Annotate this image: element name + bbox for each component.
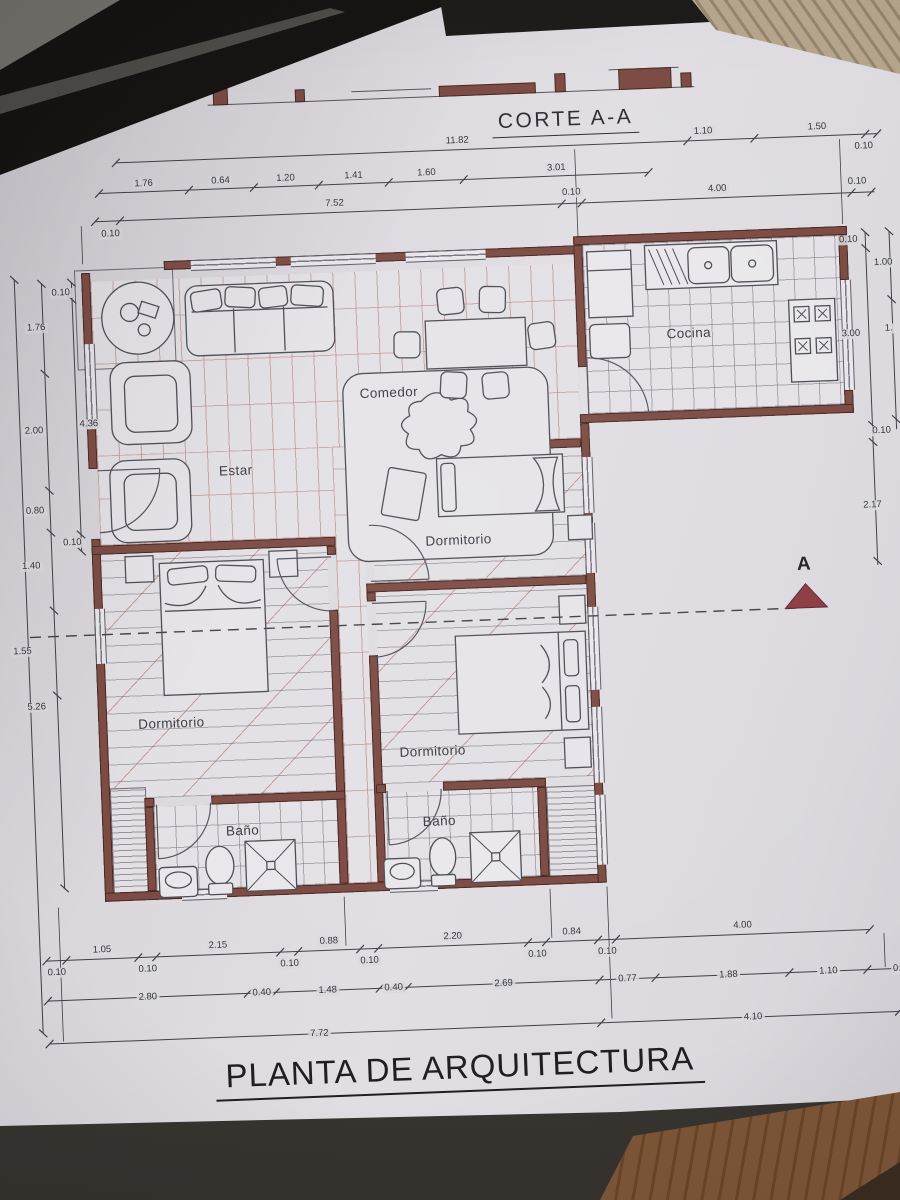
room-label-dormitorio2: Dormitorio (138, 714, 205, 732)
dim-label: 1.41 (342, 171, 365, 181)
dim-label: 2.69 (492, 978, 515, 988)
dim-label: 0.88 (317, 936, 340, 946)
dim-label: 3.00 (839, 329, 862, 339)
bedroom2-furniture (125, 550, 302, 696)
dim-label: 0.10 (891, 963, 900, 973)
dim-label: 4.00 (731, 920, 754, 930)
dim-label: 1.88 (717, 970, 740, 980)
room-label-estar: Estar (219, 462, 253, 478)
dim-label: 0.40 (382, 983, 405, 993)
dim-label: 0.10 (99, 229, 122, 239)
bedroom3-furniture (454, 595, 592, 772)
kitchen-fixtures (586, 238, 837, 389)
photo-of-floor-plan: CORTE A-A (0, 0, 900, 1200)
room-label-bano2: Baño (422, 813, 456, 829)
dim-label: 7.52 (323, 198, 346, 208)
dim-label: 0.10 (870, 425, 893, 435)
dim-label: 0.84 (560, 927, 583, 937)
room-label-dormitorio1: Dormitorio (425, 531, 492, 549)
dim-label: 1.48 (316, 985, 339, 995)
dim-label: 0.10 (49, 288, 72, 298)
dim-label: 1. (883, 323, 895, 333)
room-label-dormitorio3: Dormitorio (399, 742, 466, 760)
dim-label: 0.10 (596, 946, 619, 956)
dim-label: 2.20 (441, 931, 464, 941)
dim-label: 0.80 (24, 506, 47, 516)
dim-label: 0.10 (278, 959, 301, 969)
dim-label: 11.82 (444, 135, 471, 146)
dim-label: 1.10 (817, 966, 840, 976)
dim-label: 2.80 (136, 992, 159, 1002)
dim-label: 4.00 (706, 184, 729, 194)
dim-label: 0.10 (136, 964, 159, 974)
dim-label: 7.72 (308, 1029, 331, 1039)
dim-label: 0.10 (358, 956, 381, 966)
dim-label: 5.26 (25, 702, 48, 712)
dim-label: 0.10 (852, 141, 875, 151)
dim-label: 1.40 (20, 561, 43, 571)
dim-label: 0.10 (560, 187, 583, 197)
sheet-content: CORTE A-A (0, 0, 900, 1200)
section-marker-triangle (784, 583, 827, 609)
dim-label: 4.36 (77, 419, 100, 429)
dim-label: 0.77 (616, 974, 639, 984)
dim-label: 0.10 (846, 176, 869, 186)
bathroom2-fixtures (383, 831, 522, 889)
dim-label: 1.50 (806, 122, 829, 132)
dim-label: 0.10 (837, 235, 860, 245)
section-cut-line (29, 583, 827, 638)
dim-label: 0.64 (209, 176, 232, 186)
dim-label: 2.15 (207, 940, 230, 950)
dim-label: 4.10 (742, 1012, 765, 1022)
dim-label: 0.10 (45, 968, 68, 978)
dim-label: 1.20 (274, 173, 297, 183)
dim-label: 0.10 (61, 538, 84, 548)
dim-label: 1.05 (91, 945, 114, 955)
dim-label: 3.01 (545, 163, 568, 173)
section-marker-label: A (796, 554, 811, 577)
dim-label: 0.10 (526, 949, 549, 959)
room-label-comedor: Comedor (359, 384, 418, 401)
dim-label: 2.00 (23, 426, 46, 436)
bathroom1-fixtures (158, 839, 297, 897)
dim-label: 2.17 (861, 500, 884, 510)
dim-label: 1.00 (872, 257, 895, 267)
room-label-bano1: Baño (226, 822, 260, 838)
room-label-cocina: Cocina (666, 325, 711, 342)
dim-label: 1.76 (25, 323, 48, 333)
drawing-sheet: CORTE A-A (0, 0, 900, 1200)
dim-label: 1.76 (132, 179, 155, 189)
dim-label: 1.55 (11, 647, 34, 657)
dim-label: 0.40 (250, 988, 273, 998)
dim-label: 1.60 (415, 168, 438, 178)
dim-label: 1.10 (692, 126, 715, 136)
